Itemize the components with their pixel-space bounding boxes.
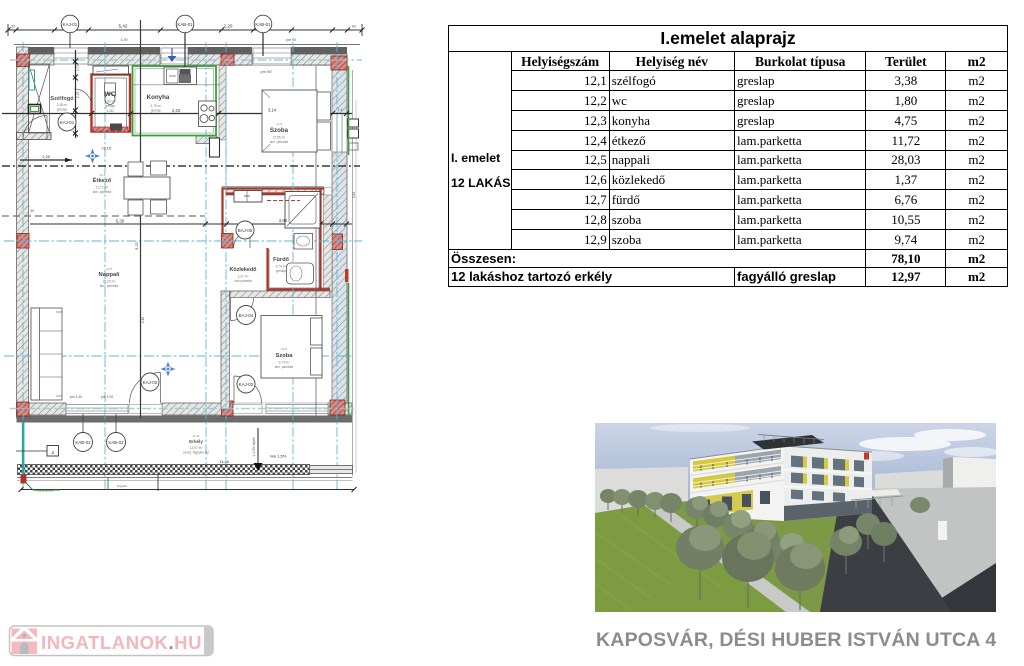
- svg-text:Közlekedő: Közlekedő: [230, 267, 258, 273]
- svg-text:+3,15: +3,15: [101, 146, 112, 151]
- svg-text:KAB-02: KAB-02: [75, 440, 91, 445]
- svg-text:Konyha: Konyha: [147, 94, 170, 101]
- svg-text:csúsz. fagyálló lap: csúsz. fagyálló lap: [183, 451, 209, 455]
- svg-text:60: 60: [352, 25, 356, 29]
- svg-text:9,22: 9,22: [135, 242, 139, 249]
- svg-text:1,28: 1,28: [42, 155, 49, 159]
- svg-text:lam. parketta: lam. parketta: [93, 190, 112, 194]
- svg-text:4,75 m²: 4,75 m²: [151, 104, 162, 108]
- svg-text:10,55 m²: 10,55 m²: [273, 136, 286, 140]
- svg-text:KAJ-02: KAJ-02: [239, 382, 254, 387]
- svg-text:12,11: 12,11: [192, 434, 200, 438]
- svg-text:12,9: 12,9: [281, 347, 287, 351]
- svg-text:4,74 m²: 4,74 m²: [276, 265, 287, 269]
- svg-text:2,20: 2,20: [224, 24, 233, 29]
- svg-text:BAJ-04: BAJ-04: [239, 313, 254, 318]
- svg-text:WC: WC: [105, 91, 116, 98]
- svg-text:pm 1,00: pm 1,00: [101, 395, 113, 399]
- svg-text:3,38 m²: 3,38 m²: [57, 103, 68, 107]
- svg-text:3,39: 3,39: [352, 192, 356, 199]
- svg-text:5,42: 5,42: [119, 24, 128, 29]
- svg-text:pm 90: pm 90: [286, 38, 296, 42]
- svg-text:pm 90: pm 90: [260, 69, 272, 74]
- svg-text:28,03 m²: 28,03 m²: [103, 280, 116, 284]
- svg-text:greslap: greslap: [57, 108, 68, 112]
- svg-text:Szélfogó: Szélfogó: [50, 96, 74, 102]
- svg-text:greslap: greslap: [151, 109, 162, 113]
- svg-text:1,4: 1,4: [338, 108, 343, 112]
- svg-text:30: 30: [30, 209, 34, 213]
- svg-text:1,01: 1,01: [76, 65, 80, 72]
- svg-text:lam. parketta: lam. parketta: [275, 365, 294, 369]
- svg-text:lam.parketta: lam.parketta: [234, 279, 252, 283]
- svg-text:12,97 m²: 12,97 m²: [190, 446, 203, 450]
- svg-text:lam. parketta: lam. parketta: [100, 284, 119, 288]
- svg-text:2,46: 2,46: [141, 317, 145, 324]
- svg-text:greslap: greslap: [105, 104, 116, 108]
- svg-text:KAJ-01: KAJ-01: [63, 22, 78, 27]
- svg-text:lam. parketta: lam. parketta: [270, 140, 289, 144]
- svg-text:1,37 m²: 1,37 m²: [238, 275, 249, 279]
- svg-text:KAB-01: KAB-01: [177, 22, 193, 27]
- svg-text:1:1,5% lejtés: 1:1,5% lejtés: [252, 437, 256, 457]
- svg-text:9,74 m²: 9,74 m²: [279, 361, 290, 365]
- svg-text:Szoba: Szoba: [275, 353, 293, 359]
- svg-text:KAJ-02: KAJ-02: [143, 380, 158, 385]
- svg-text:3,39: 3,39: [121, 38, 128, 42]
- svg-text:Folyóka: Folyóka: [117, 484, 127, 488]
- svg-text:KAB-01: KAB-01: [255, 22, 271, 27]
- svg-text:BAJ-05: BAJ-05: [238, 228, 253, 233]
- svg-text:min.1,5%: min.1,5%: [270, 454, 287, 459]
- svg-text:3,14: 3,14: [268, 108, 277, 113]
- svg-text:Erkély: Erkély: [189, 439, 203, 444]
- svg-text:KAJ-01: KAJ-01: [60, 120, 75, 125]
- svg-text:greslap: greslap: [276, 269, 287, 273]
- svg-text:Attikai áttörés: Attikai áttörés: [37, 489, 55, 493]
- svg-text:2,88: 2,88: [279, 218, 288, 223]
- svg-text:5,30: 5,30: [116, 219, 125, 224]
- svg-text:12,8: 12,8: [276, 122, 282, 126]
- svg-text:11,25: 11,25: [219, 459, 229, 464]
- svg-text:1,00: 1,00: [107, 109, 114, 113]
- svg-text:Étkező: Étkező: [93, 176, 112, 184]
- svg-text:2,43: 2,43: [172, 108, 181, 113]
- svg-text:30: 30: [11, 25, 15, 29]
- svg-text:11,72 m²: 11,72 m²: [96, 186, 108, 190]
- svg-text:Nappali: Nappali: [99, 272, 120, 278]
- svg-text:12,5: 12,5: [106, 267, 112, 271]
- svg-text:Szoba: Szoba: [270, 127, 289, 134]
- svg-text:12,4: 12,4: [99, 173, 105, 177]
- svg-text:Fürdő: Fürdő: [273, 257, 289, 263]
- svg-text:2,15: 2,15: [76, 92, 80, 99]
- svg-text:1,80 m²: 1,80 m²: [105, 100, 116, 104]
- svg-text:KAB-02: KAB-02: [108, 440, 124, 445]
- svg-text:pm 1,00: pm 1,00: [70, 395, 82, 399]
- svg-text:INGATLANOK.HU: INGATLANOK.HU: [41, 632, 202, 653]
